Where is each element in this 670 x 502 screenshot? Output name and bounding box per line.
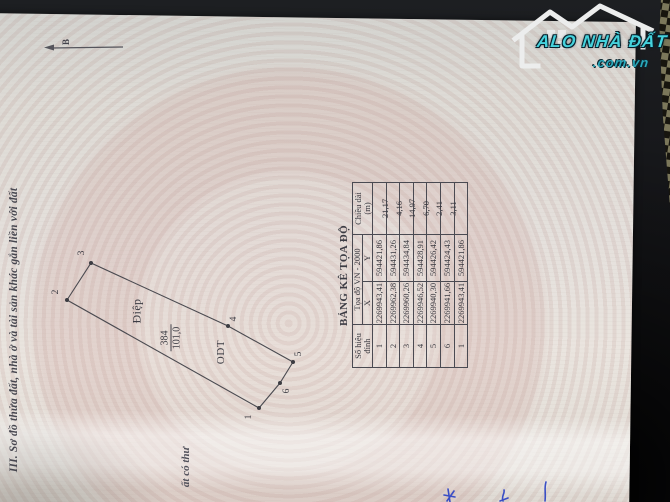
vertex-label-1: 1 <box>244 415 254 420</box>
parcel-owner-label: Điệp <box>130 299 145 324</box>
north-label: B <box>61 39 71 45</box>
table-row: 12269943,41 594421,8621,17 <box>373 182 387 367</box>
coordinate-table: BẢNG KÊ TỌA ĐỘ Số hiệu đỉnh Tọa độ VN - … <box>337 183 470 368</box>
col-header-y: Y <box>363 234 373 281</box>
partial-bottom-text: ất có thư <box>180 447 192 487</box>
section-heading: III. Sơ đồ thửa đất, nhà ở và tài sản kh… <box>8 188 20 473</box>
col-header-coords: Tọa độ VN - 2000 <box>353 234 363 324</box>
col-header-x: X <box>363 282 373 325</box>
parcel-number-area: 384 101,0 <box>160 325 183 352</box>
vertex-label-3: 3 <box>77 251 87 256</box>
brand-text: ALO NHÀ ĐẤT <box>536 32 668 52</box>
col-header-length: Chiều dài (m) <box>353 182 373 234</box>
watermark-logo: ALO NHÀ ĐẤT .com.vn <box>503 2 668 80</box>
col-header-vertex: Số hiệu đỉnh <box>353 325 373 368</box>
parcel-area: 101,0 <box>171 325 183 352</box>
parcel-number: 384 <box>160 325 171 352</box>
vertex-label-4: 4 <box>229 317 239 322</box>
table-title: BẢNG KÊ TỌA ĐỘ <box>337 183 352 368</box>
photographed-document: III. Sơ đồ thửa đất, nhà ở và tài sản kh… <box>0 0 670 502</box>
paper-sheet <box>0 13 636 502</box>
vertex-label-6: 6 <box>282 389 292 394</box>
vertex-label-5: 5 <box>294 352 304 357</box>
vertex-label-2: 2 <box>51 290 61 295</box>
brand-domain-text: .com.vn <box>592 55 650 70</box>
land-use-code: ODT <box>215 340 227 364</box>
